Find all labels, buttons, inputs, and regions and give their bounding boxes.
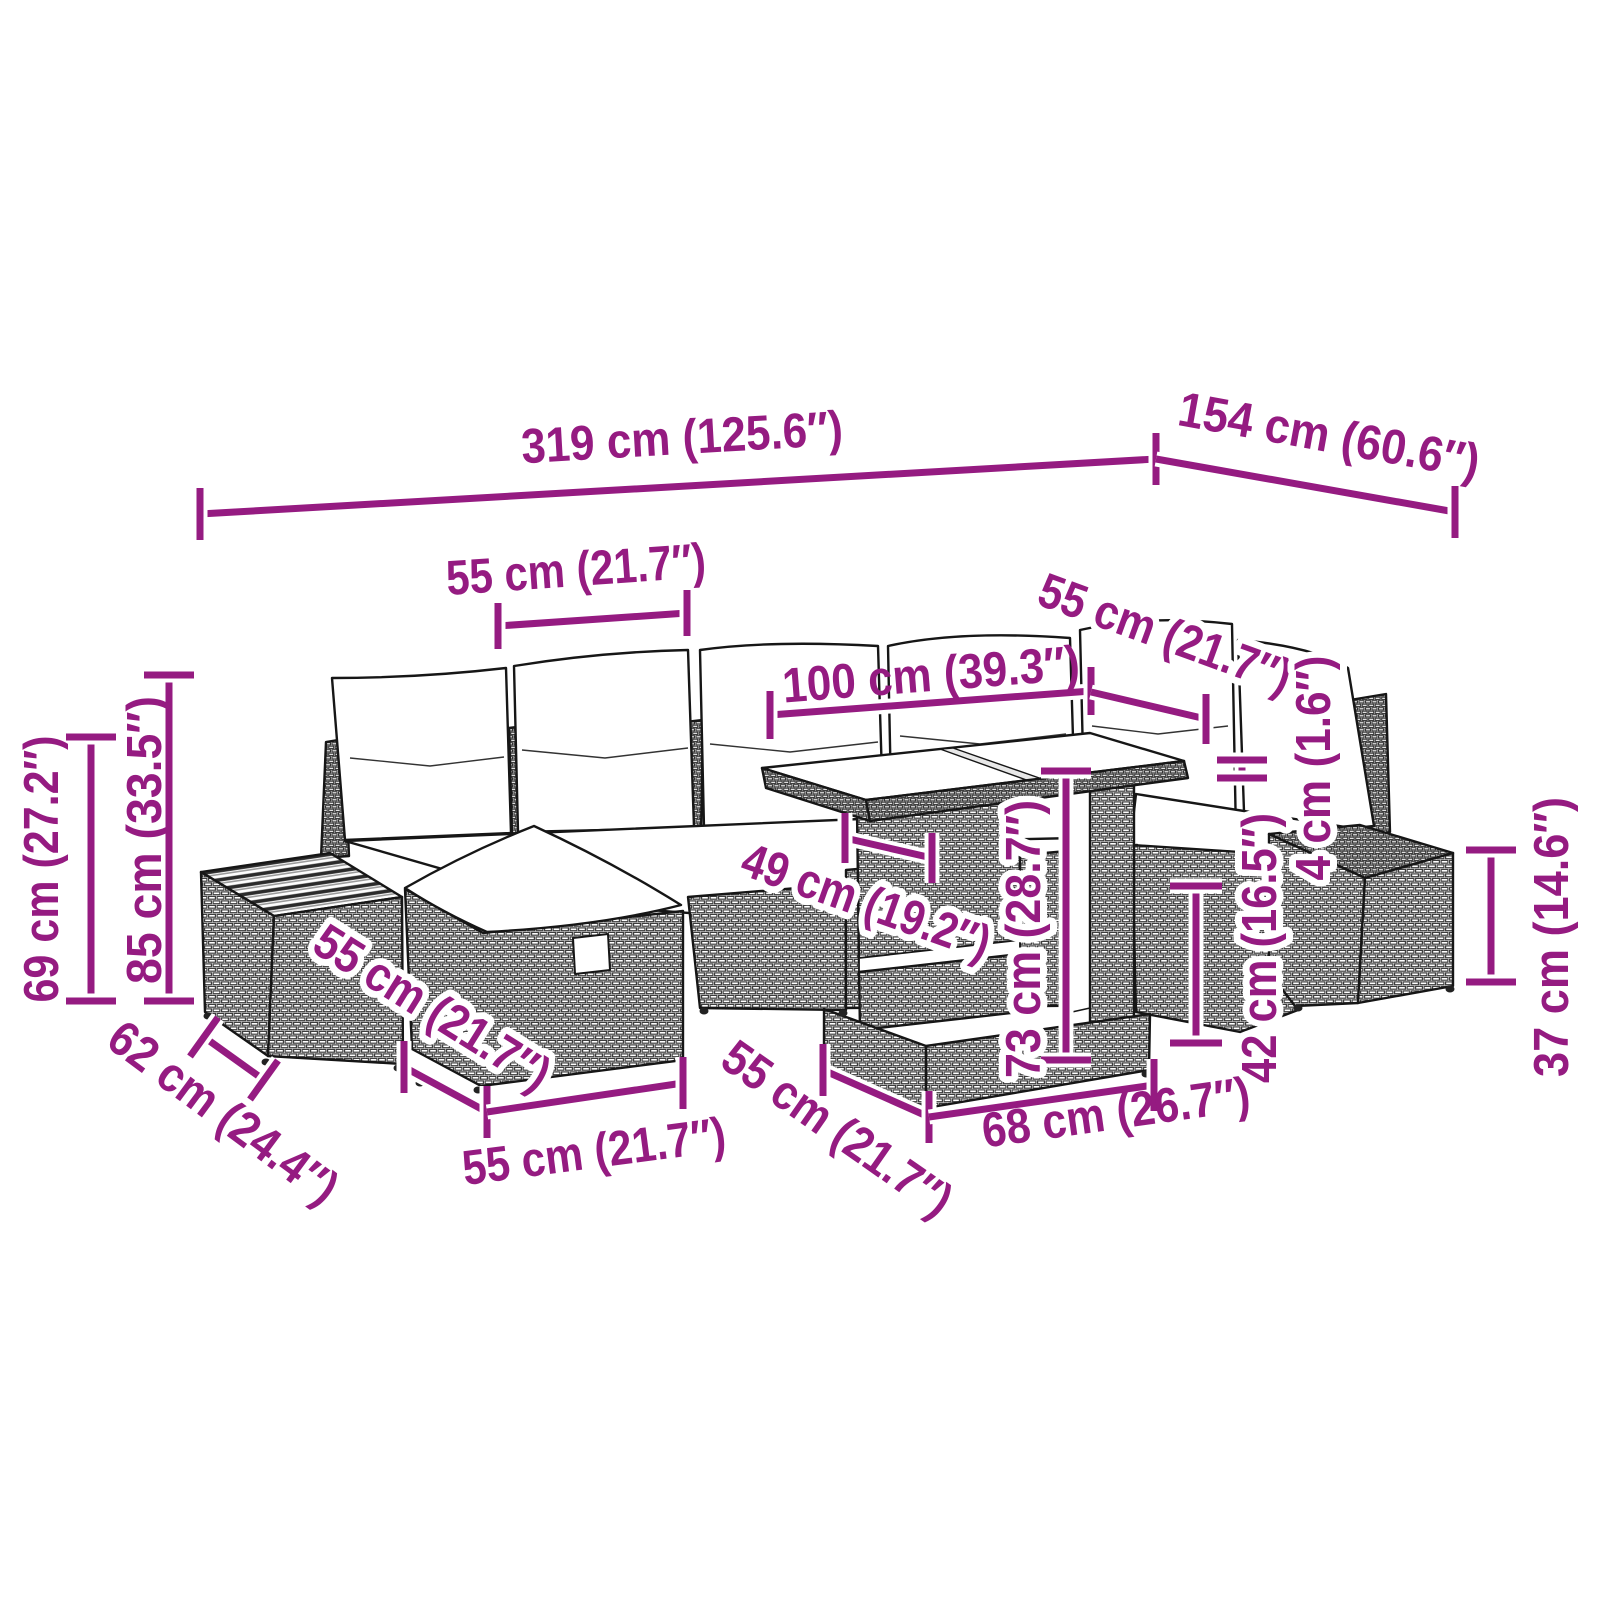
svg-text:37 cm (14.6″): 37 cm (14.6″) <box>1525 797 1579 1077</box>
svg-text:69 cm (27.2″): 69 cm (27.2″) <box>15 736 69 1003</box>
svg-text:73 cm (28.7″): 73 cm (28.7″) <box>997 800 1051 1078</box>
svg-text:85 cm (33.5″): 85 cm (33.5″) <box>118 696 172 984</box>
svg-text:42 cm (16.5″): 42 cm (16.5″) <box>1233 813 1287 1083</box>
svg-text:4 cm (1.6″): 4 cm (1.6″) <box>1287 656 1341 881</box>
